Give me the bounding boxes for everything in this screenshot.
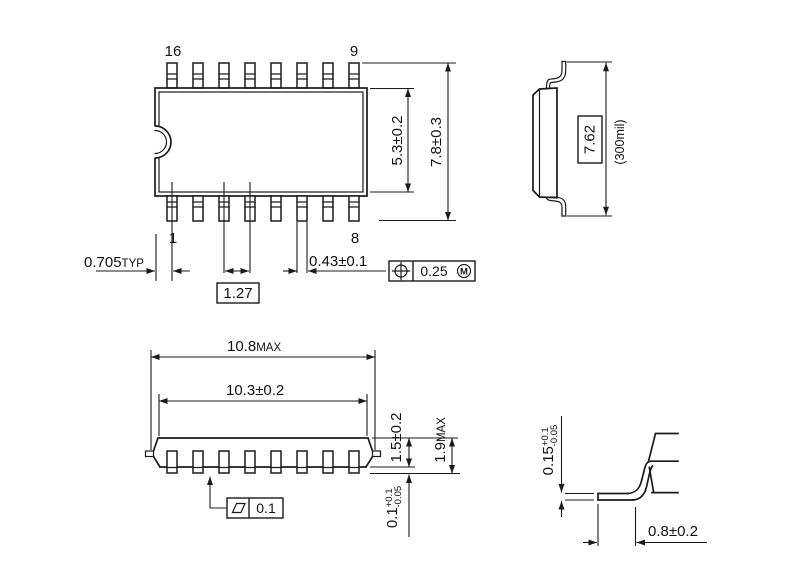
pin <box>297 196 307 221</box>
dim-lead-offset-label: 0.705TYP <box>84 254 144 271</box>
dim-end-lead-span-label: 7.62 <box>582 125 599 154</box>
pin <box>349 196 359 221</box>
bottom-pin-row <box>167 196 359 221</box>
dim-pitch-label: 1.27 <box>223 285 252 302</box>
dim-lead-thickness: 0.15+0.1-0.05 <box>540 416 594 517</box>
position-symbol-icon <box>393 263 410 280</box>
front-view: 10.8MAX 10.3±0.2 1.5±0.2 1.9MAX 0.1+0.1-… <box>146 338 461 537</box>
ic-body-front-view <box>154 438 373 467</box>
dim-body-thickness-label: 1.5±0.2 <box>388 413 405 463</box>
pin <box>219 63 229 88</box>
lead-detail: 0.15+0.1-0.05 0.8±0.2 <box>540 416 707 546</box>
front-pin-row <box>167 451 359 473</box>
svg-text:M: M <box>460 267 468 278</box>
dim-lead-width-label: 0.43±0.1 <box>309 253 367 270</box>
dim-end-lead-span-note: (300mil) <box>613 119 627 164</box>
dim-body-length-label: 10.3±0.2 <box>226 382 284 399</box>
pin-label-8: 8 <box>351 230 359 247</box>
pin-label-1: 1 <box>169 230 177 247</box>
pin <box>167 63 177 88</box>
extension-lines <box>156 182 307 281</box>
dim-lead-offset: 0.705TYP <box>84 254 190 271</box>
position-tolerance-value: 0.25 <box>420 263 447 279</box>
dim-body-width: 5.3±0.2 <box>370 89 414 193</box>
end-tab-right <box>373 451 381 457</box>
gull-wing-lead-top <box>547 62 566 89</box>
pin <box>323 451 333 473</box>
end-view: 7.62 (300mil) <box>533 62 627 217</box>
position-tolerance-frame: 0.25 M <box>389 261 475 281</box>
dim-foot-length: 0.8±0.2 <box>583 504 707 546</box>
dim-overall-height: 1.9MAX <box>432 417 452 474</box>
dim-body-length: 10.3±0.2 <box>159 382 367 436</box>
pin <box>323 196 333 221</box>
dim-pitch: 1.27 <box>217 271 259 303</box>
top-view: 16 9 1 8 5.3±0.2 7.8±0.3 0.705TYP 1.27 <box>84 43 475 303</box>
dim-foot-length-label: 0.8±0.2 <box>648 523 698 540</box>
dim-standoff-label: 0.1+0.1-0.05 <box>384 486 404 528</box>
gull-wing-lead-bottom <box>547 197 566 216</box>
pin <box>167 451 177 473</box>
pin <box>219 451 229 473</box>
top-pin-row <box>167 63 359 88</box>
dim-end-lead-span: 7.62 (300mil) <box>567 62 627 216</box>
pin-label-16: 16 <box>165 43 182 60</box>
ic-body-end-view <box>533 88 557 198</box>
dim-lead-span: 7.8±0.3 <box>362 63 456 221</box>
pin-label-9: 9 <box>350 43 358 60</box>
coplanarity-value: 0.1 <box>256 500 276 516</box>
pin <box>349 451 359 473</box>
pin <box>245 63 255 88</box>
dim-lead-width: 0.43±0.1 <box>283 253 386 271</box>
dim-overall-length-label: 10.8MAX <box>227 338 281 355</box>
ic-body-bevel <box>159 92 363 192</box>
pin <box>323 63 333 88</box>
body-edge-lines <box>649 434 678 493</box>
pin <box>271 63 281 88</box>
pin <box>297 63 307 88</box>
lead-foot-profile <box>598 461 678 500</box>
ic-body-top-view <box>155 88 367 196</box>
dim-lead-thickness-label: 0.15+0.1-0.05 <box>540 425 560 476</box>
pin <box>193 196 203 221</box>
pin <box>245 451 255 473</box>
pin <box>349 63 359 88</box>
flatness-icon <box>233 504 246 513</box>
dim-overall-height-label: 1.9MAX <box>432 417 449 463</box>
pin <box>193 63 203 88</box>
pin <box>297 451 307 473</box>
drawing-canvas: 16 9 1 8 5.3±0.2 7.8±0.3 0.705TYP 1.27 <box>0 0 800 574</box>
end-tab-left <box>146 451 154 457</box>
package-outline-drawing: 16 9 1 8 5.3±0.2 7.8±0.3 0.705TYP 1.27 <box>0 0 800 574</box>
pin <box>193 451 203 473</box>
flatness-callout: 0.1 <box>210 477 283 519</box>
mmc-icon: M <box>458 265 471 278</box>
dim-body-width-label: 5.3±0.2 <box>389 116 406 166</box>
dim-standoff: 0.1+0.1-0.05 <box>384 475 409 538</box>
pin <box>271 196 281 221</box>
dim-lead-span-label: 7.8±0.3 <box>428 117 445 167</box>
pin <box>271 451 281 473</box>
